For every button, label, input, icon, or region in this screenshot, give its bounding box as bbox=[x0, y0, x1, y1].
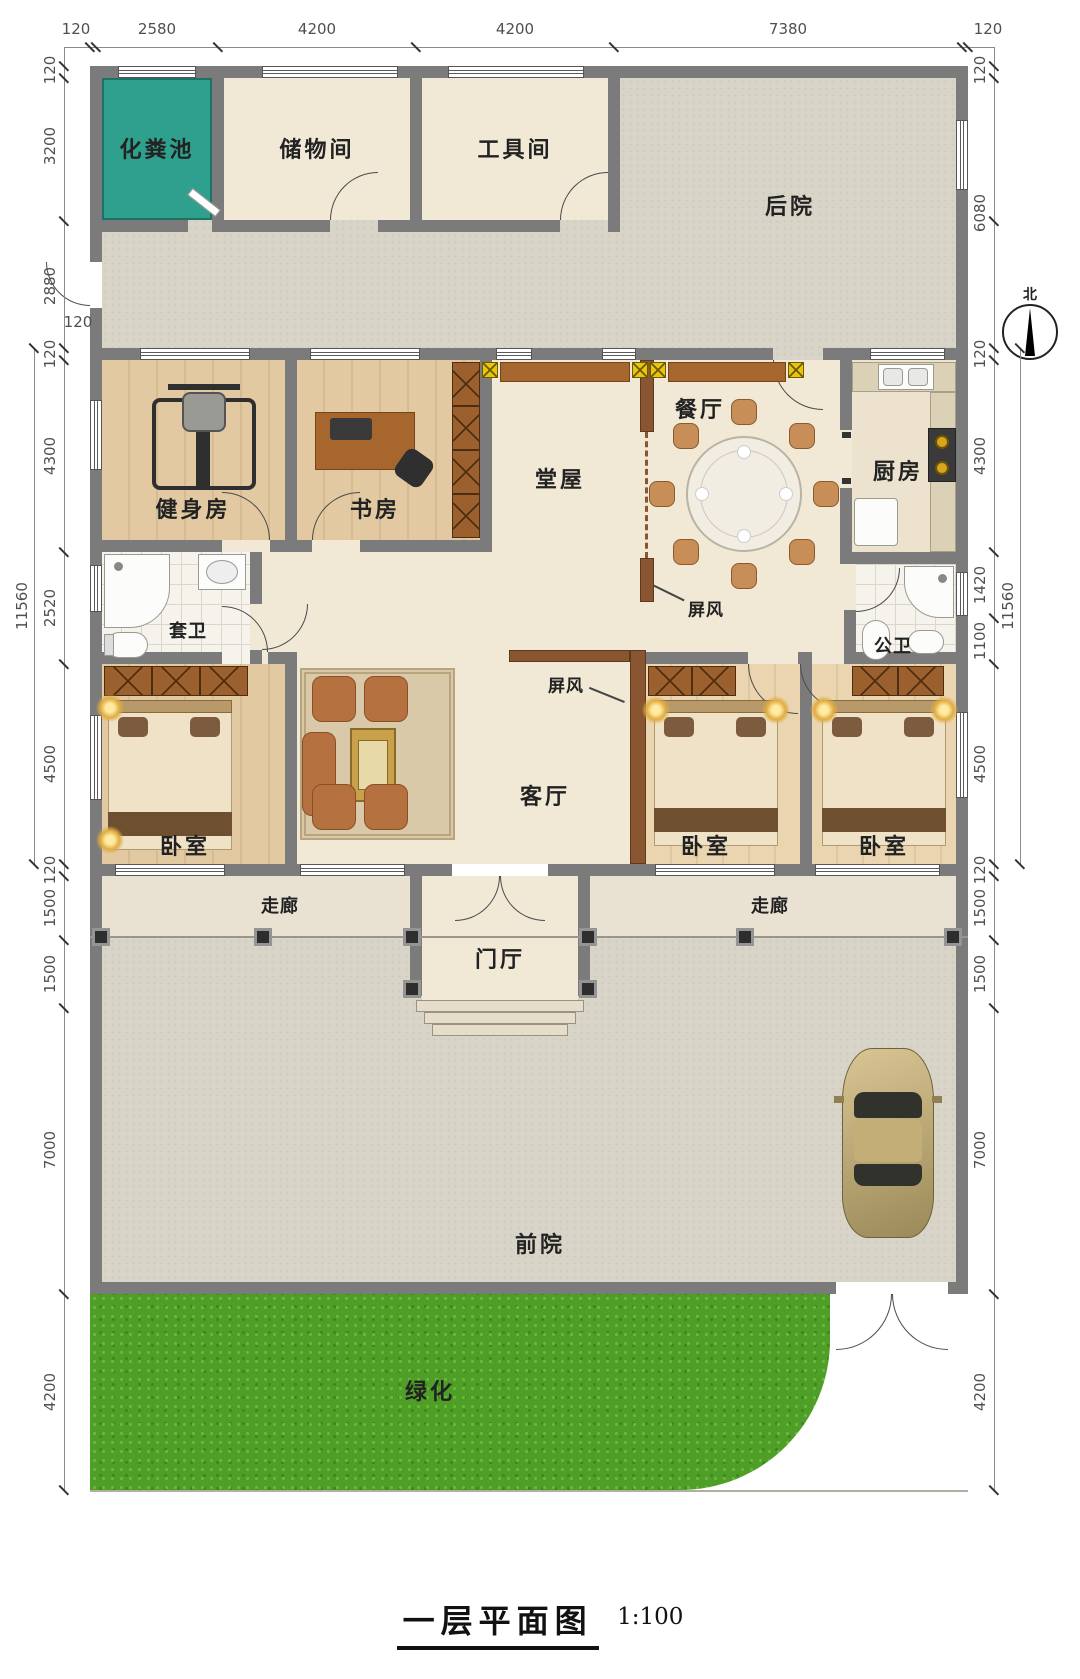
window bbox=[870, 348, 945, 360]
wardrobe bbox=[648, 666, 692, 696]
console-table bbox=[668, 362, 786, 382]
door-leaf bbox=[842, 432, 851, 438]
column bbox=[736, 928, 754, 946]
wall bbox=[285, 360, 297, 540]
dim-label: 7380 bbox=[769, 20, 807, 38]
wardrobe bbox=[692, 666, 736, 696]
window bbox=[956, 120, 968, 190]
pillow bbox=[904, 717, 934, 737]
wall bbox=[410, 78, 422, 232]
room-label-living: 客厅 bbox=[520, 779, 570, 811]
dim-label: 2880 bbox=[41, 267, 59, 305]
screen-bar bbox=[509, 650, 630, 662]
room-label-bedroom1: 卧室 bbox=[160, 829, 210, 861]
shower-drain bbox=[938, 574, 947, 583]
armchair bbox=[364, 784, 408, 830]
dining-chair bbox=[813, 481, 839, 507]
wardrobe bbox=[898, 666, 944, 696]
pillow bbox=[118, 717, 148, 737]
sink-basin bbox=[883, 368, 903, 386]
console-table bbox=[500, 362, 630, 382]
room-label-corridor-right: 走廊 bbox=[751, 892, 789, 918]
desk-blotter bbox=[330, 418, 372, 440]
plate bbox=[737, 529, 751, 543]
dim-line-left-outer bbox=[34, 348, 35, 864]
dim-label: 1500 bbox=[971, 955, 989, 993]
window bbox=[90, 400, 102, 470]
window bbox=[310, 348, 420, 360]
stove-burner bbox=[935, 435, 949, 449]
room-label-ensuite: 套卫 bbox=[169, 617, 207, 643]
plate bbox=[737, 445, 751, 459]
gate-gap bbox=[836, 1282, 948, 1294]
dim-label: 1420 bbox=[971, 566, 989, 604]
dim-label: 120 bbox=[41, 856, 59, 885]
dim-label: 120 bbox=[62, 20, 91, 38]
dim-label: 4200 bbox=[298, 20, 336, 38]
nightstand-lamp bbox=[96, 826, 124, 854]
dim-label: 2520 bbox=[41, 589, 59, 627]
wardrobe bbox=[104, 666, 152, 696]
pillow bbox=[736, 717, 766, 737]
dining-chair bbox=[789, 423, 815, 449]
armchair bbox=[312, 784, 356, 830]
sink-bowl bbox=[206, 560, 238, 584]
dim-label: 4200 bbox=[971, 1373, 989, 1411]
gate-arc bbox=[892, 1294, 948, 1350]
stove-burner bbox=[935, 461, 949, 475]
room-label-main-hall: 堂屋 bbox=[535, 462, 585, 494]
window bbox=[655, 864, 775, 876]
nightstand-lamp bbox=[810, 696, 838, 724]
dim-label: 1500 bbox=[41, 955, 59, 993]
room-label-septic-tank: 化粪池 bbox=[119, 132, 194, 164]
lawn bbox=[90, 1294, 830, 1490]
room-label-foyer: 门厅 bbox=[475, 942, 525, 974]
foyer-floor bbox=[422, 876, 578, 1000]
dim-line-right bbox=[994, 47, 995, 1490]
window bbox=[262, 66, 398, 78]
gym-equipment-seat bbox=[182, 392, 226, 432]
wall bbox=[378, 220, 560, 232]
window bbox=[115, 864, 225, 876]
toilet-tank bbox=[104, 634, 114, 656]
column bbox=[92, 928, 110, 946]
wardrobe bbox=[852, 666, 898, 696]
door-gap bbox=[90, 262, 102, 308]
room-label-storage: 储物间 bbox=[279, 132, 354, 164]
dining-chair bbox=[731, 399, 757, 425]
door-leaf bbox=[842, 478, 851, 484]
column bbox=[579, 928, 597, 946]
title-block: 一层平面图 1:100 bbox=[0, 1596, 1080, 1650]
plate bbox=[695, 487, 709, 501]
window bbox=[815, 864, 940, 876]
dim-label: 11560 bbox=[999, 582, 1017, 630]
bed-headboard bbox=[822, 700, 946, 713]
dim-label: 4200 bbox=[496, 20, 534, 38]
wall bbox=[840, 360, 852, 430]
dim-label: 2580 bbox=[138, 20, 176, 38]
wall bbox=[840, 488, 852, 552]
room-label-bedroom3: 卧室 bbox=[859, 829, 909, 861]
dim-label: 11560 bbox=[13, 582, 31, 630]
dining-table-ring bbox=[700, 450, 788, 538]
wall bbox=[608, 220, 620, 232]
ground-line bbox=[90, 1490, 968, 1492]
dim-label: 4300 bbox=[41, 437, 59, 475]
dim-label: 6080 bbox=[971, 194, 989, 232]
window bbox=[118, 66, 196, 78]
plant-stand bbox=[482, 362, 498, 378]
wall bbox=[840, 552, 968, 564]
wall bbox=[956, 66, 968, 1294]
fridge bbox=[854, 498, 898, 546]
sink-basin bbox=[908, 368, 928, 386]
compass-north-label: 北 bbox=[1023, 284, 1037, 304]
window bbox=[956, 572, 968, 616]
wall bbox=[90, 66, 102, 1294]
dim-line-right-outer bbox=[1020, 348, 1021, 864]
dim-label: 120 bbox=[41, 340, 59, 369]
wall bbox=[224, 220, 330, 232]
bath-sink bbox=[908, 630, 944, 654]
bed-headboard bbox=[108, 700, 232, 713]
column bbox=[254, 928, 272, 946]
window bbox=[956, 712, 968, 798]
column bbox=[403, 980, 421, 998]
car-mirror bbox=[834, 1096, 844, 1103]
room-label-gym: 健身房 bbox=[155, 492, 230, 524]
wall bbox=[250, 650, 262, 664]
steps bbox=[432, 1024, 568, 1036]
floor-plan: 北 化粪池 储物间 工具间 后院 健身房 书房 堂屋 餐厅 厨房 套卫 公卫 客… bbox=[0, 0, 1080, 1679]
dining-chair bbox=[789, 539, 815, 565]
dim-label: 120 bbox=[974, 20, 1003, 38]
room-label-greenery: 绿化 bbox=[405, 1374, 455, 1406]
dim-label: 120 bbox=[971, 340, 989, 369]
shower-drain bbox=[114, 562, 123, 571]
room-label-kitchen: 厨房 bbox=[873, 454, 923, 486]
window bbox=[90, 715, 102, 800]
wardrobe bbox=[152, 666, 200, 696]
screen-post bbox=[640, 558, 654, 602]
wall-brown bbox=[630, 650, 646, 864]
dim-label: 120 bbox=[971, 56, 989, 85]
window bbox=[602, 348, 636, 360]
screen-dashed bbox=[645, 432, 648, 558]
porch-edge bbox=[90, 936, 968, 938]
wall bbox=[250, 552, 262, 604]
dim-label: 120 bbox=[64, 313, 93, 331]
dining-chair bbox=[649, 481, 675, 507]
car-windshield bbox=[854, 1092, 922, 1118]
steps bbox=[424, 1012, 576, 1024]
column bbox=[579, 980, 597, 998]
wall bbox=[634, 652, 748, 664]
pillow bbox=[190, 717, 220, 737]
dim-label: 4200 bbox=[41, 1373, 59, 1411]
nightstand-lamp bbox=[96, 694, 124, 722]
wall bbox=[360, 540, 492, 552]
car-roof bbox=[854, 1120, 922, 1162]
dining-chair bbox=[673, 423, 699, 449]
pillow bbox=[664, 717, 694, 737]
room-label-study: 书房 bbox=[350, 492, 400, 524]
page-title: 一层平面图 bbox=[397, 1596, 599, 1650]
wall bbox=[608, 78, 620, 232]
dining-chair bbox=[673, 539, 699, 565]
dim-label: 7000 bbox=[971, 1131, 989, 1169]
window bbox=[140, 348, 250, 360]
label-screen-2: 屏风 bbox=[548, 672, 584, 697]
dim-label: 1100 bbox=[971, 622, 989, 660]
dim-line-left bbox=[64, 47, 65, 1490]
column bbox=[403, 928, 421, 946]
dim-label: 120 bbox=[41, 56, 59, 85]
window bbox=[448, 66, 584, 78]
room-label-public-bath: 公卫 bbox=[874, 632, 912, 658]
window bbox=[496, 348, 532, 360]
bookshelf bbox=[452, 406, 480, 450]
room-label-front-yard: 前院 bbox=[515, 1227, 565, 1259]
room-label-backyard: 后院 bbox=[765, 189, 815, 221]
dim-line-top bbox=[64, 47, 994, 48]
door-gap bbox=[452, 864, 548, 876]
car-rear-glass bbox=[854, 1164, 922, 1186]
steps bbox=[416, 1000, 584, 1012]
nightstand-lamp bbox=[930, 696, 958, 724]
dim-label: 4500 bbox=[41, 745, 59, 783]
bookshelf bbox=[452, 362, 480, 406]
room-label-bedroom2: 卧室 bbox=[681, 829, 731, 861]
bookshelf bbox=[452, 450, 480, 494]
nightstand-lamp bbox=[642, 696, 670, 724]
column bbox=[944, 928, 962, 946]
dining-chair bbox=[731, 563, 757, 589]
gate-arc bbox=[836, 1294, 892, 1350]
armchair bbox=[312, 676, 356, 722]
room-label-tools: 工具间 bbox=[477, 132, 552, 164]
dim-label: 1500 bbox=[971, 889, 989, 927]
wall bbox=[480, 360, 492, 540]
car-mirror bbox=[932, 1096, 942, 1103]
coffee-table-top bbox=[358, 740, 388, 790]
wall bbox=[270, 540, 312, 552]
window bbox=[300, 864, 405, 876]
wall bbox=[90, 220, 188, 232]
window bbox=[90, 565, 102, 612]
compass-needle-icon bbox=[1025, 308, 1035, 356]
wall bbox=[90, 540, 222, 552]
dim-label: 3200 bbox=[41, 127, 59, 165]
wardrobe bbox=[200, 666, 248, 696]
room-label-corridor-left: 走廊 bbox=[261, 892, 299, 918]
armchair bbox=[364, 676, 408, 722]
plant-stand bbox=[788, 362, 804, 378]
dim-label: 4300 bbox=[971, 437, 989, 475]
gym-equipment-bench bbox=[196, 432, 210, 490]
label-screen-1: 屏风 bbox=[688, 596, 724, 621]
dim-label: 1500 bbox=[41, 889, 59, 927]
bookshelf bbox=[452, 494, 480, 538]
plant-stand bbox=[650, 362, 666, 378]
pillow bbox=[832, 717, 862, 737]
nightstand-lamp bbox=[762, 696, 790, 724]
room-label-dining: 餐厅 bbox=[675, 392, 725, 424]
wall bbox=[285, 652, 297, 864]
dim-label: 7000 bbox=[41, 1131, 59, 1169]
gym-equipment-bar bbox=[168, 384, 240, 390]
dim-label: 120 bbox=[971, 856, 989, 885]
dim-label: 4500 bbox=[971, 745, 989, 783]
plant-stand bbox=[632, 362, 648, 378]
bed-headboard bbox=[654, 700, 778, 713]
title-scale: 1:100 bbox=[617, 1604, 683, 1630]
plate bbox=[779, 487, 793, 501]
